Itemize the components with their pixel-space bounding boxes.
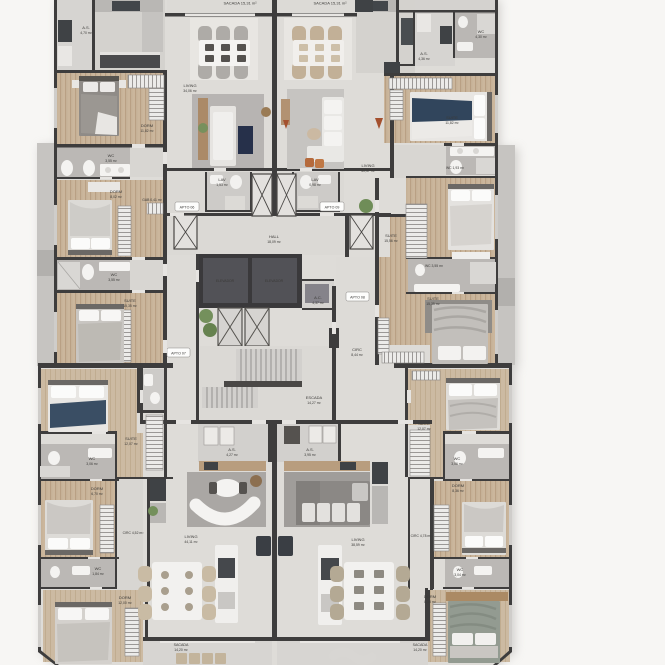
svg-text:DORM: DORM <box>119 595 131 600</box>
svg-text:0,98 m²: 0,98 m² <box>309 183 321 187</box>
svg-text:GAB 0,41 m²: GAB 0,41 m² <box>142 198 162 202</box>
svg-text:LIVING: LIVING <box>361 163 374 168</box>
svg-text:DORM: DORM <box>110 189 122 194</box>
svg-text:SUITE: SUITE <box>418 421 430 426</box>
svg-text:8,38 m²: 8,38 m² <box>424 600 436 604</box>
svg-text:15,35 m²: 15,35 m² <box>123 304 137 308</box>
svg-text:34,06 m²: 34,06 m² <box>183 89 197 93</box>
svg-text:SUITE: SUITE <box>124 298 136 303</box>
svg-text:SUITE: SUITE <box>446 115 458 120</box>
svg-text:12,07 m²: 12,07 m² <box>417 427 431 431</box>
svg-text:ELEVADOR: ELEVADOR <box>265 279 284 283</box>
svg-text:SACADA 15,31 m²: SACADA 15,31 m² <box>313 1 347 6</box>
svg-text:4,37 m²: 4,37 m² <box>312 301 324 305</box>
svg-text:SUITE: SUITE <box>125 436 137 441</box>
svg-text:LAV: LAV <box>311 177 319 182</box>
svg-text:WC: WC <box>89 456 96 461</box>
svg-text:CIRC: CIRC <box>352 347 362 352</box>
svg-text:WC: WC <box>457 567 464 572</box>
svg-text:1,84 m²: 1,84 m² <box>92 572 104 576</box>
svg-text:12,07 m²: 12,07 m² <box>124 442 138 446</box>
svg-text:4,30 m²: 4,30 m² <box>475 35 487 39</box>
svg-text:8,44 m²: 8,44 m² <box>351 353 363 357</box>
svg-text:SUITE: SUITE <box>385 233 397 238</box>
svg-text:APTO 08: APTO 08 <box>350 296 365 300</box>
svg-text:LAV: LAV <box>218 177 226 182</box>
svg-text:WC: WC <box>478 29 485 34</box>
svg-text:3,04 m²: 3,04 m² <box>454 573 466 577</box>
svg-text:4,36 m²: 4,36 m² <box>418 57 430 61</box>
svg-text:14,27 m²: 14,27 m² <box>307 401 321 405</box>
svg-text:WC: WC <box>454 456 461 461</box>
svg-text:44,11 m²: 44,11 m² <box>184 540 198 544</box>
svg-text:DORM: DORM <box>141 123 153 128</box>
svg-text:CIRC 4,78 m²: CIRC 4,78 m² <box>411 534 433 538</box>
svg-text:3,95 m²: 3,95 m² <box>304 453 316 457</box>
svg-text:WC 3,55 m²: WC 3,55 m² <box>425 264 444 268</box>
svg-text:WC 1,93 m²: WC 1,93 m² <box>446 166 465 170</box>
svg-text:3,06 m²: 3,06 m² <box>86 462 98 466</box>
svg-text:12,00 m²: 12,00 m² <box>118 601 132 605</box>
svg-text:DORM: DORM <box>452 483 464 488</box>
svg-text:3,55 m²: 3,55 m² <box>108 278 120 282</box>
svg-text:SACADA: SACADA <box>413 643 428 647</box>
svg-text:APTO 07: APTO 07 <box>171 352 186 356</box>
svg-text:6,70 m²: 6,70 m² <box>91 492 103 496</box>
svg-text:50,37 m²: 50,37 m² <box>361 169 375 173</box>
svg-text:APTO 09: APTO 09 <box>325 206 340 210</box>
svg-text:DORM: DORM <box>424 594 436 599</box>
svg-text:WC: WC <box>95 566 102 571</box>
svg-text:38,59 m²: 38,59 m² <box>351 543 365 547</box>
svg-text:A.S.: A.S. <box>306 447 314 452</box>
svg-text:15,56 m²: 15,56 m² <box>384 239 398 243</box>
svg-text:8,02 m²: 8,02 m² <box>110 195 122 199</box>
svg-text:4,70 m²: 4,70 m² <box>80 31 92 35</box>
svg-text:3,55 m²: 3,55 m² <box>105 159 117 163</box>
svg-text:11,82 m²: 11,82 m² <box>445 121 459 125</box>
svg-text:18,09 m²: 18,09 m² <box>267 240 281 244</box>
svg-text:LIVING: LIVING <box>184 534 197 539</box>
svg-text:11,82 m²: 11,82 m² <box>140 129 154 133</box>
svg-text:LIVING: LIVING <box>183 83 196 88</box>
svg-text:14,20 m²: 14,20 m² <box>413 648 427 652</box>
svg-text:SUITE: SUITE <box>427 296 439 301</box>
svg-text:SACADA: SACADA <box>174 643 189 647</box>
svg-text:ESCADA: ESCADA <box>306 395 323 400</box>
svg-text:A.S.: A.S. <box>228 447 236 452</box>
svg-text:APTO 06: APTO 06 <box>180 206 195 210</box>
svg-text:3,06 m²: 3,06 m² <box>451 462 463 466</box>
svg-text:DORM: DORM <box>91 486 103 491</box>
svg-text:A.S.: A.S. <box>82 25 90 30</box>
svg-text:WC: WC <box>108 153 115 158</box>
svg-text:SACADA 15,31 m²: SACADA 15,31 m² <box>223 1 257 6</box>
svg-text:1,53 m²: 1,53 m² <box>216 183 228 187</box>
svg-text:CIRC 4,52 m²: CIRC 4,52 m² <box>123 531 145 535</box>
svg-text:WC: WC <box>111 272 118 277</box>
svg-text:4,27 m²: 4,27 m² <box>226 453 238 457</box>
svg-text:A.S.: A.S. <box>420 51 428 56</box>
svg-text:8,36 m²: 8,36 m² <box>452 489 464 493</box>
svg-text:15,35 m²: 15,35 m² <box>426 302 440 306</box>
svg-text:LIVING: LIVING <box>351 537 364 542</box>
svg-text:14,20 m²: 14,20 m² <box>174 648 188 652</box>
svg-text:A.C.: A.C. <box>314 295 322 300</box>
svg-text:ELEVADOR: ELEVADOR <box>216 279 235 283</box>
svg-text:HALL: HALL <box>269 234 280 239</box>
